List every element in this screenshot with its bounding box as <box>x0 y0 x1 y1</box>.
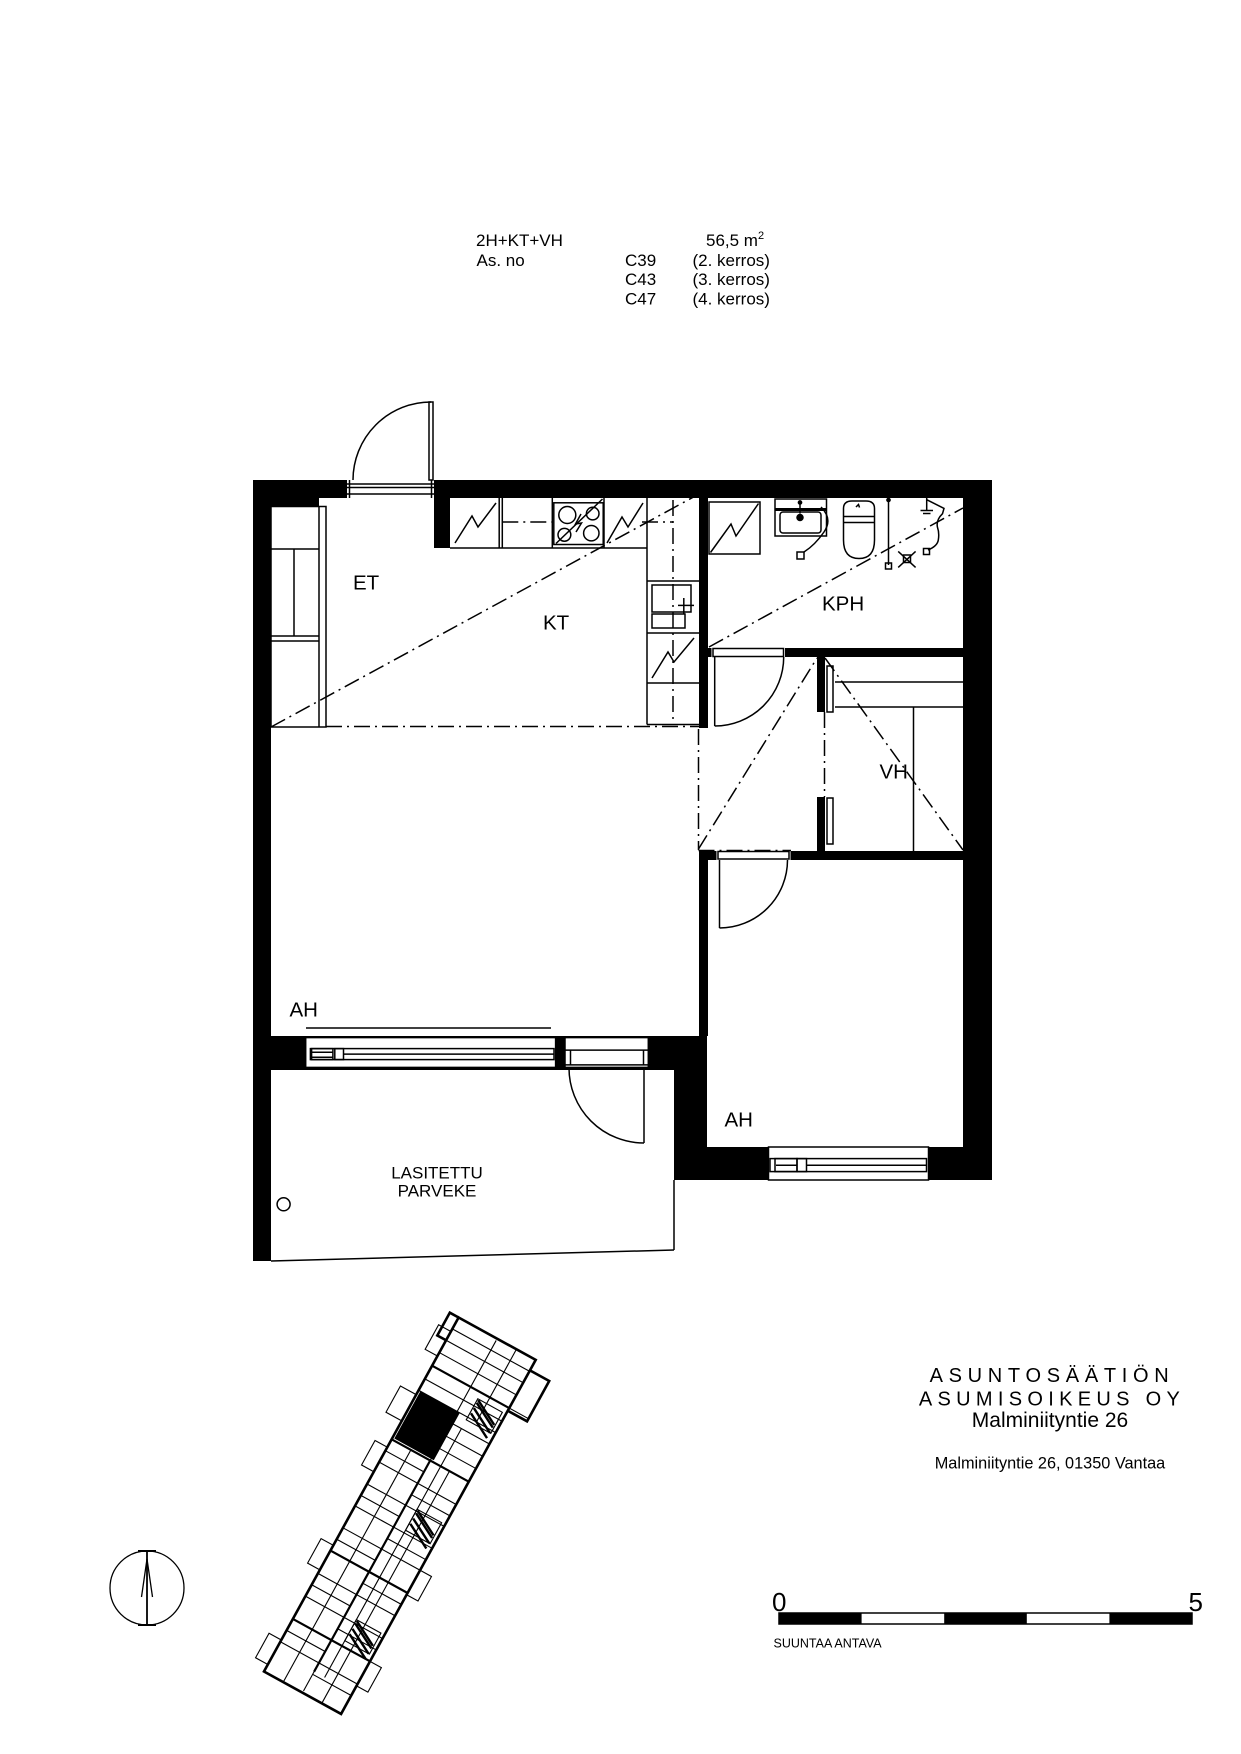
svg-text:0: 0 <box>772 1587 786 1617</box>
svg-text:AH: AH <box>725 1109 753 1132</box>
svg-text:56,5 m: 56,5 m <box>706 231 758 250</box>
svg-text:ASUMISOIKEUS OY: ASUMISOIKEUS OY <box>919 1389 1185 1411</box>
svg-text:2H+KT+VH: 2H+KT+VH <box>476 231 563 250</box>
svg-text:VH: VH <box>880 761 908 784</box>
svg-text:C47: C47 <box>625 290 656 309</box>
svg-text:(4. kerros): (4. kerros) <box>693 290 770 309</box>
svg-text:Malminiityntie 26, 01350 Vanta: Malminiityntie 26, 01350 Vantaa <box>935 1455 1166 1473</box>
svg-text:ET: ET <box>353 572 380 595</box>
svg-text:5: 5 <box>1189 1587 1203 1617</box>
svg-text:(3. kerros): (3. kerros) <box>693 270 770 289</box>
svg-text:KT: KT <box>543 612 570 635</box>
svg-text:AH: AH <box>290 999 318 1022</box>
svg-text:C39: C39 <box>625 251 656 270</box>
svg-text:2: 2 <box>758 230 764 242</box>
svg-text:SUUNTAA ANTAVA: SUUNTAA ANTAVA <box>774 1637 883 1651</box>
svg-text:As. no: As. no <box>477 251 525 270</box>
svg-text:KPH: KPH <box>822 593 864 616</box>
svg-text:ASUNTOSÄÄTIÖN: ASUNTOSÄÄTIÖN <box>930 1365 1175 1387</box>
svg-text:(2. kerros): (2. kerros) <box>693 251 770 270</box>
svg-text:LASITETTU: LASITETTU <box>391 1164 483 1183</box>
svg-text:C43: C43 <box>625 270 656 289</box>
svg-text:Malminiityntie 26: Malminiityntie 26 <box>972 1409 1128 1432</box>
svg-text:PARVEKE: PARVEKE <box>398 1182 477 1201</box>
